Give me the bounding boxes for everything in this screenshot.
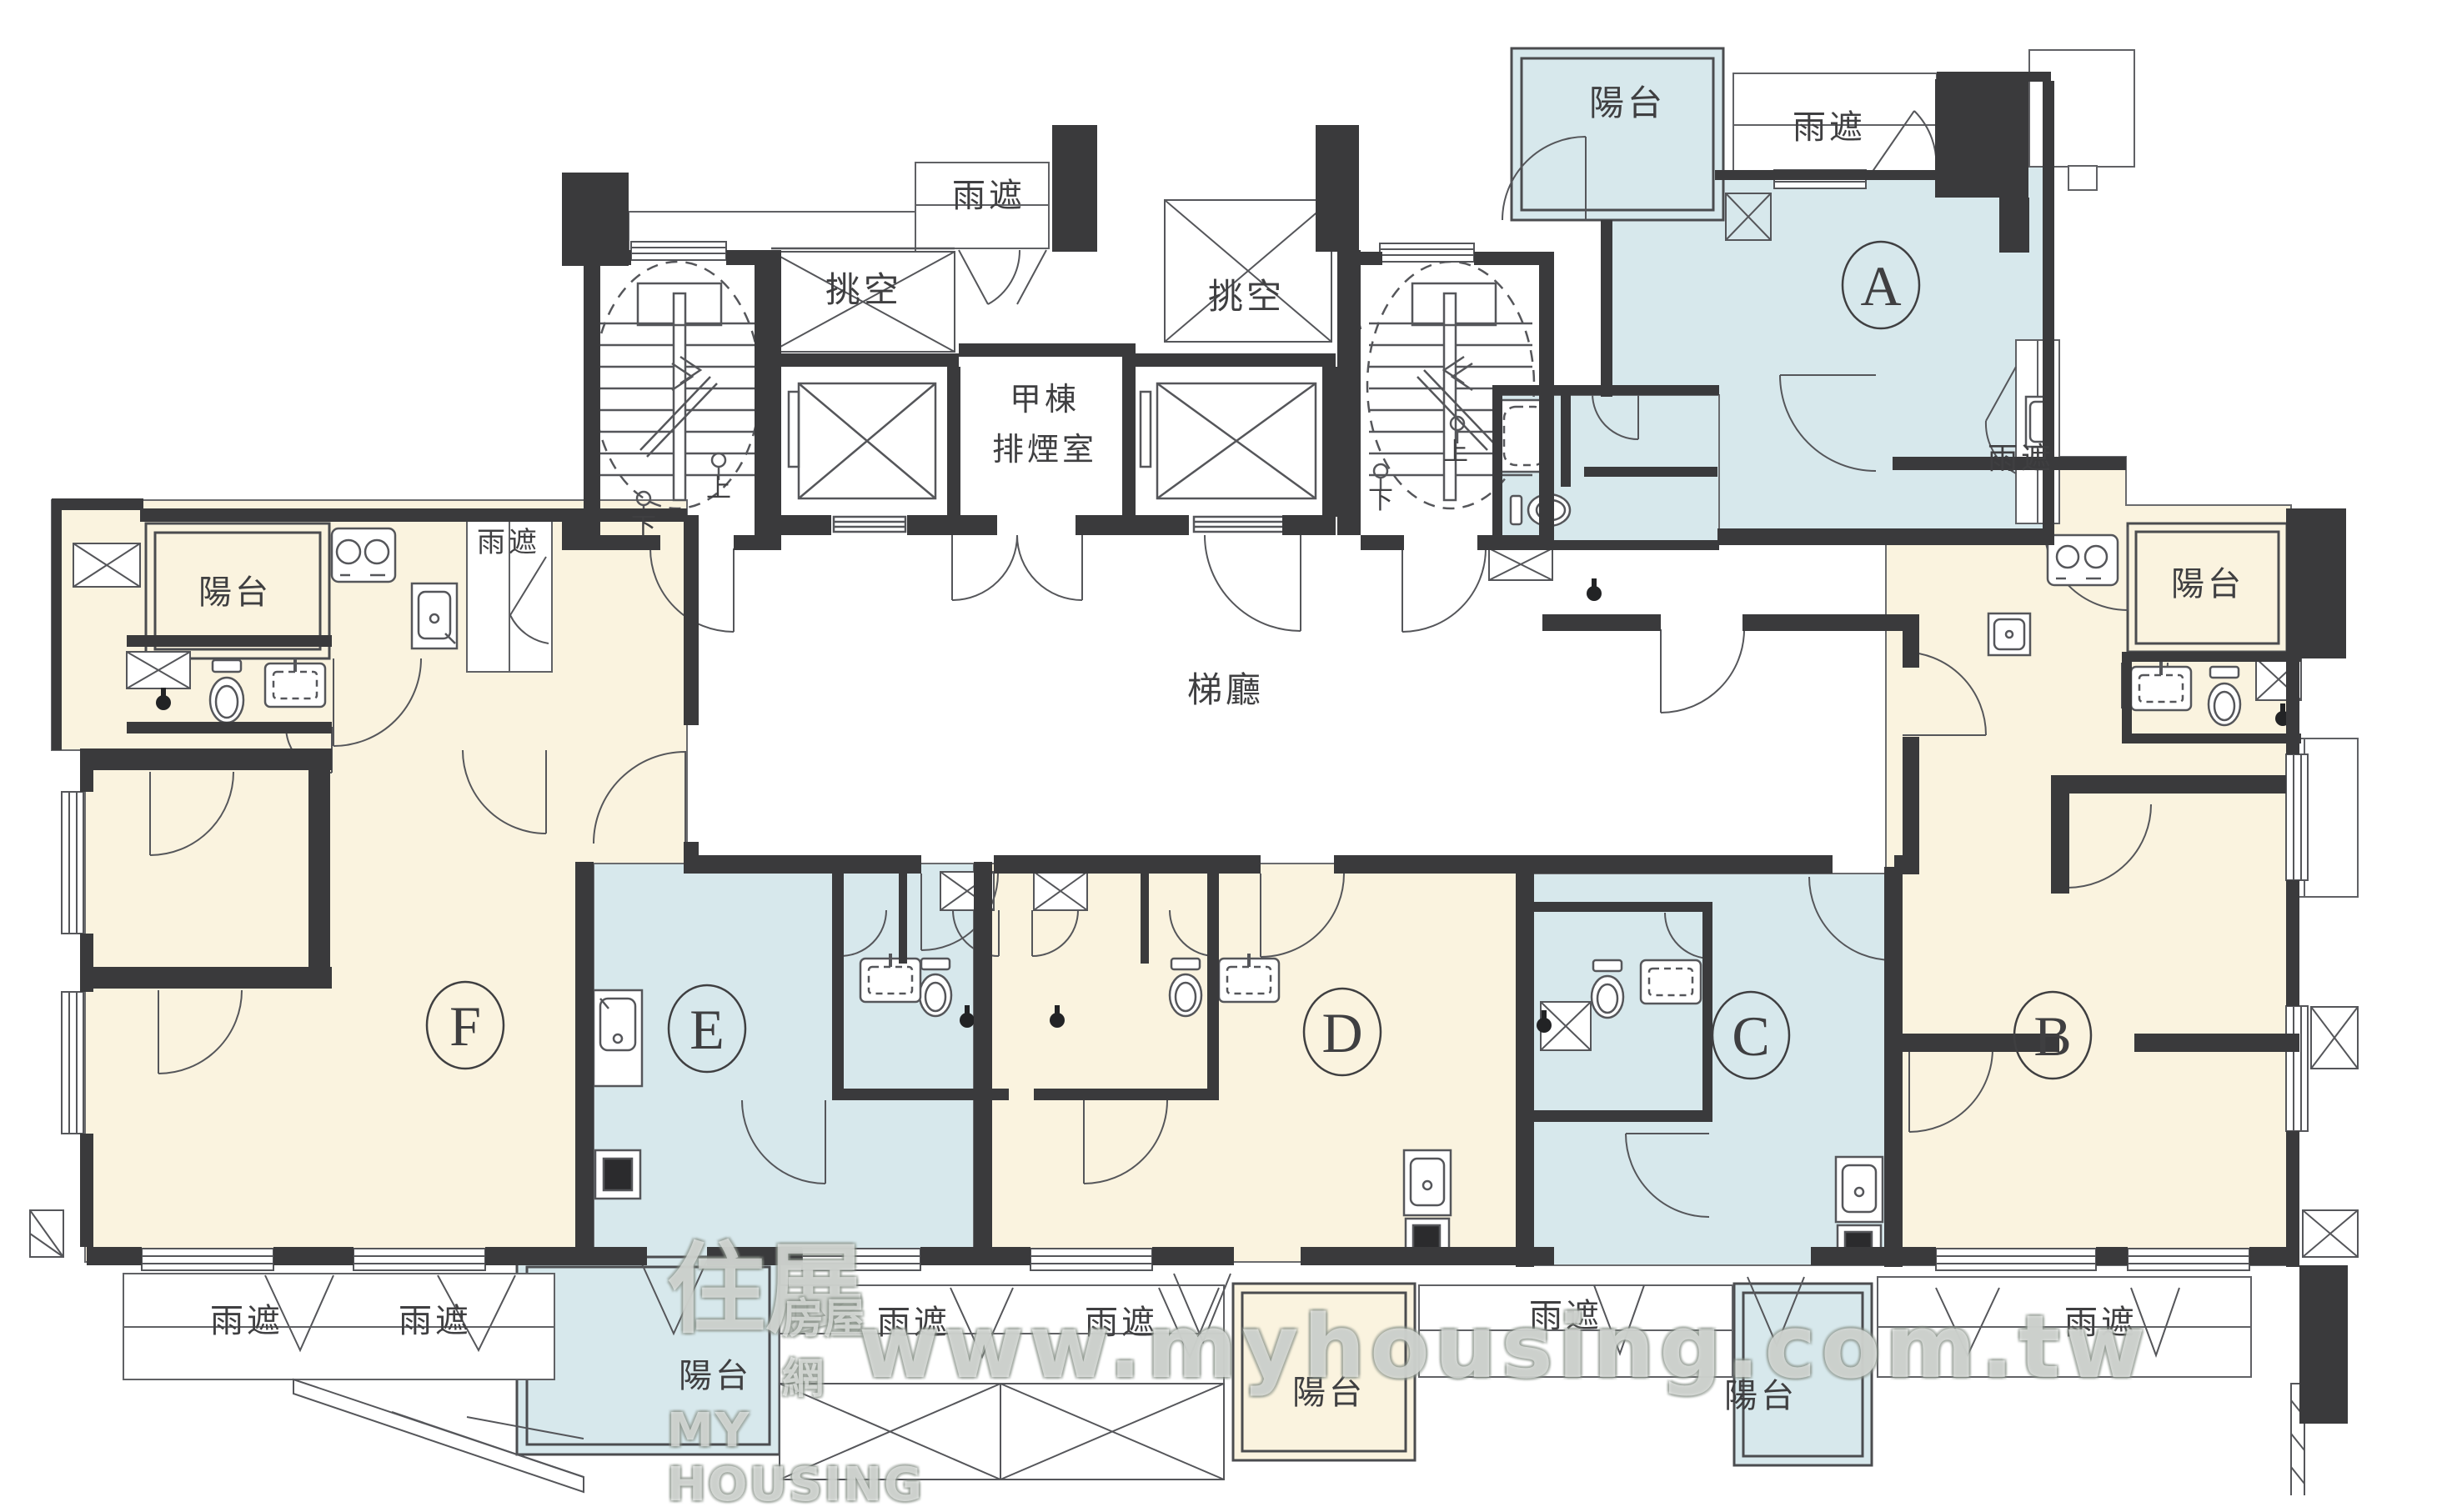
sink-d-icon xyxy=(1404,1150,1451,1215)
unit-a-label: A xyxy=(1860,254,1901,318)
unit-d-label: D xyxy=(1321,1001,1362,1064)
smoke-room-label-2: 排煙室 xyxy=(992,431,1097,468)
smoke-room-label-1: 甲棟 xyxy=(1010,381,1080,418)
toilet-c-icon xyxy=(1592,960,1623,1018)
basin-b-icon xyxy=(2131,662,2191,710)
elevator-door-sill-left xyxy=(834,517,905,532)
raincover-b-label: 雨遮 xyxy=(2064,1304,2138,1342)
void-right-area xyxy=(1165,200,1331,342)
sink-c-icon xyxy=(1836,1157,1883,1222)
basin-d-icon xyxy=(1219,954,1279,1002)
raincover-f1-label: 雨遮 xyxy=(210,1302,283,1340)
basin-c-icon xyxy=(1641,960,1701,1004)
raincover-a-right-label: 雨遮 xyxy=(1988,442,2054,476)
column-a-x xyxy=(1726,193,1771,240)
stair-left-down-label: 下 xyxy=(631,513,659,542)
stove-f-icon xyxy=(332,528,395,582)
stair-right-down-label: 下 xyxy=(1368,486,1396,515)
sink-e-icon xyxy=(594,990,642,1086)
sink-f-icon xyxy=(412,583,457,648)
toilet-f-icon xyxy=(210,660,243,723)
raincover-f2-label: 雨遮 xyxy=(399,1302,472,1340)
balcony-d xyxy=(1233,1284,1415,1460)
stair-right-up-label: 上 xyxy=(1443,438,1472,467)
stair-left-up-label: 上 xyxy=(706,474,735,503)
shaft-a-annex xyxy=(1489,548,1552,580)
unit-b-label: B xyxy=(2033,1004,2071,1068)
elevator-door-sill-right xyxy=(1194,517,1286,532)
toilet-b-icon xyxy=(2209,667,2240,725)
void-right-label: 挑空 xyxy=(1208,276,1285,317)
appliance-e-icon xyxy=(595,1150,640,1199)
hatch-se-corner xyxy=(2303,1210,2358,1257)
sink-b-icon xyxy=(1988,613,2030,655)
shaft-f-bath xyxy=(127,652,190,688)
balcony-a-label: 陽台 xyxy=(1589,83,1666,123)
balcony-f-label: 陽台 xyxy=(198,573,272,612)
unit-f-label: F xyxy=(449,994,481,1058)
unit-e-label: E xyxy=(689,998,725,1061)
basin-e-icon xyxy=(860,954,920,1002)
trellis-bottom-1 xyxy=(780,1384,1000,1479)
raincover-center1-label: 雨遮 xyxy=(877,1304,950,1342)
balcony-c-label: 陽台 xyxy=(1724,1377,1798,1415)
raincover-top-center-label: 雨遮 xyxy=(952,177,1025,215)
basin-f-icon xyxy=(265,658,325,707)
shaft-f-annex xyxy=(73,543,140,587)
stove-b-icon xyxy=(2048,535,2118,585)
stair-left-icon xyxy=(589,262,765,518)
floor-plan-svg: ABCDEF 陽台雨遮雨遮雨遮挑空挑空甲棟排煙室梯廳上下上下陽台雨遮陽台雨遮雨遮… xyxy=(0,0,2462,1495)
balcony-e-label: 陽台 xyxy=(679,1357,752,1395)
balcony-e xyxy=(517,1257,780,1454)
elevator-left-icon xyxy=(789,383,935,498)
hatch-sw-corner xyxy=(30,1210,63,1257)
void-left-label: 挑空 xyxy=(825,269,902,310)
raincover-cd-label: 雨遮 xyxy=(1529,1297,1602,1335)
balcony-c xyxy=(1734,1284,1872,1465)
trellis-bottom-2 xyxy=(1000,1384,1224,1479)
balcony-a xyxy=(1512,48,1723,220)
raincover-f-right-label: 雨遮 xyxy=(477,526,540,559)
balcony-d-label: 陽台 xyxy=(1292,1374,1366,1412)
toilet-d-icon xyxy=(1170,959,1201,1016)
shaft-d xyxy=(1034,872,1087,910)
lobby-label: 梯廳 xyxy=(1187,669,1264,710)
balcony-b-label: 陽台 xyxy=(2171,565,2244,603)
raincover-a-top-label: 雨遮 xyxy=(1793,108,1866,147)
toilet-e-icon xyxy=(920,959,951,1016)
unit-c-label: C xyxy=(1732,1004,1769,1068)
raincover-center2-label: 雨遮 xyxy=(1085,1304,1158,1342)
elevator-right-icon xyxy=(1141,383,1316,498)
unit-e-area xyxy=(594,864,974,1262)
shaft-b-east xyxy=(2311,1007,2358,1069)
floor-plan-stage: ABCDEF 陽台雨遮雨遮雨遮挑空挑空甲棟排煙室梯廳上下上下陽台雨遮陽台雨遮雨遮… xyxy=(0,0,2462,1495)
